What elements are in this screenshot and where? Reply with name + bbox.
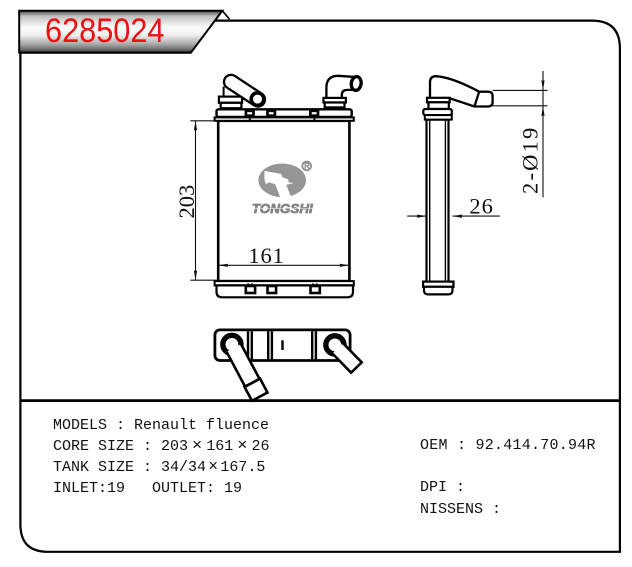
svg-text:TANK SIZE : 34/34×167.5: TANK SIZE : 34/34×167.5 <box>53 457 265 476</box>
svg-text:OEM : 92.414.70.94R: OEM : 92.414.70.94R <box>420 437 596 454</box>
svg-text:CORE SIZE : 203×161×26: CORE SIZE : 203×161×26 <box>53 437 269 456</box>
svg-text:26: 26 <box>469 193 494 218</box>
svg-text:DPI :: DPI : <box>420 479 465 496</box>
svg-text:INLET:19 OUTLET: 19: INLET:19 OUTLET: 19 <box>53 480 242 497</box>
svg-text:NISSENS :: NISSENS : <box>420 501 501 518</box>
svg-text:161: 161 <box>248 243 284 268</box>
svg-text:MODELS : Renault fluence: MODELS : Renault fluence <box>53 417 269 434</box>
svg-text:203: 203 <box>174 185 199 219</box>
svg-text:6285024: 6285024 <box>45 12 165 50</box>
svg-text:2-Ø19: 2-Ø19 <box>518 126 543 195</box>
